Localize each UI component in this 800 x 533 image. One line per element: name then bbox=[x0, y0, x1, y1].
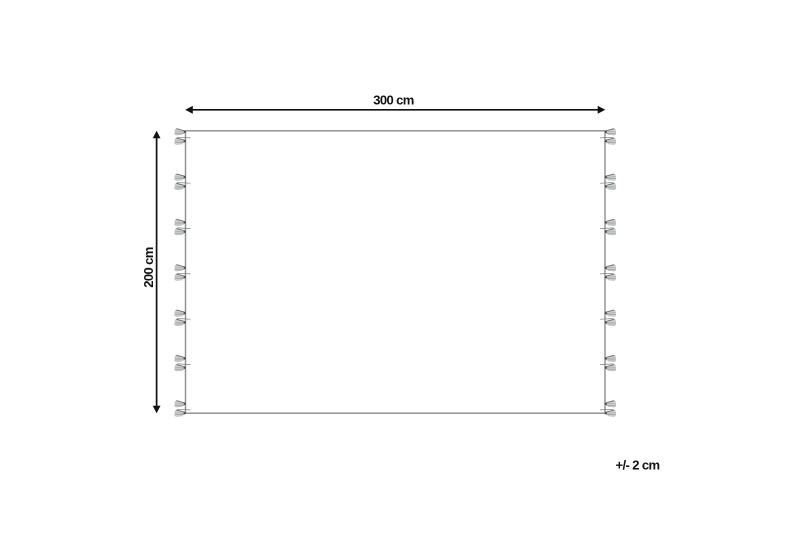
svg-text:+/- 2 cm: +/- 2 cm bbox=[616, 457, 660, 472]
svg-text:300 cm: 300 cm bbox=[373, 93, 414, 108]
svg-text:200 cm: 200 cm bbox=[141, 247, 156, 288]
